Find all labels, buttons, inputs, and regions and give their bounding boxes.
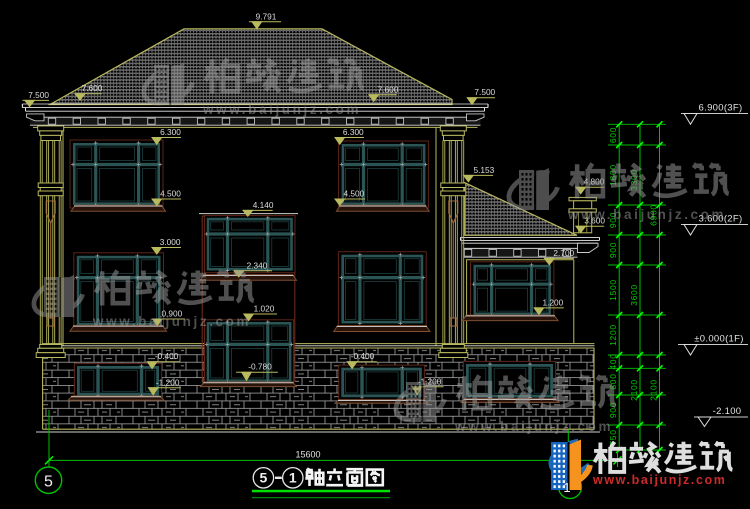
svg-text:3.000: 3.000	[160, 237, 181, 247]
svg-text:5: 5	[260, 470, 268, 486]
svg-text:www.baijunjz.com: www.baijunjz.com	[567, 207, 726, 222]
svg-text:7.500: 7.500	[28, 90, 49, 100]
svg-text:1500: 1500	[608, 279, 618, 301]
svg-text:2.340: 2.340	[247, 260, 268, 270]
svg-text:-1.200: -1.200	[156, 377, 180, 387]
svg-text:1.020: 1.020	[254, 304, 275, 314]
svg-text:6.300: 6.300	[343, 127, 364, 137]
svg-text:www.baijunjz.com: www.baijunjz.com	[202, 102, 361, 117]
svg-text:2100: 2100	[629, 379, 639, 401]
svg-text:-0.400: -0.400	[155, 351, 179, 361]
svg-text:1: 1	[289, 470, 297, 486]
svg-text:4.500: 4.500	[160, 189, 181, 199]
svg-text:1: 1	[563, 480, 570, 495]
svg-text:4.140: 4.140	[253, 200, 274, 210]
svg-text:±0.000(1F): ±0.000(1F)	[694, 334, 743, 345]
svg-text:www.baijunjz.com: www.baijunjz.com	[592, 473, 726, 487]
svg-text:400: 400	[608, 353, 618, 369]
svg-text:1200: 1200	[608, 324, 618, 346]
svg-text:15600: 15600	[295, 449, 320, 459]
svg-text:7.500: 7.500	[474, 87, 495, 97]
svg-text:5.153: 5.153	[474, 165, 495, 175]
svg-text:www.baijunjz.com: www.baijunjz.com	[92, 314, 251, 329]
svg-text:-0.400: -0.400	[351, 351, 375, 361]
svg-text:3600: 3600	[629, 284, 639, 306]
svg-text:2.700: 2.700	[553, 248, 574, 258]
svg-text:6.900(3F): 6.900(3F)	[699, 103, 743, 114]
svg-text:1.200: 1.200	[543, 297, 564, 307]
svg-text:4.500: 4.500	[344, 189, 365, 199]
svg-text:900: 900	[608, 242, 618, 258]
svg-text:-0.780: -0.780	[248, 362, 272, 372]
svg-text:9.791: 9.791	[256, 11, 277, 21]
svg-text:5: 5	[44, 473, 53, 490]
svg-text:www.baijunjz.com: www.baijunjz.com	[454, 419, 613, 434]
svg-text:7.600: 7.600	[82, 83, 103, 93]
svg-text:2100: 2100	[649, 379, 659, 401]
svg-text:-2.100: -2.100	[713, 406, 742, 417]
svg-text:7.600: 7.600	[378, 84, 399, 94]
svg-text:6.300: 6.300	[160, 127, 181, 137]
svg-text:600: 600	[608, 127, 618, 143]
